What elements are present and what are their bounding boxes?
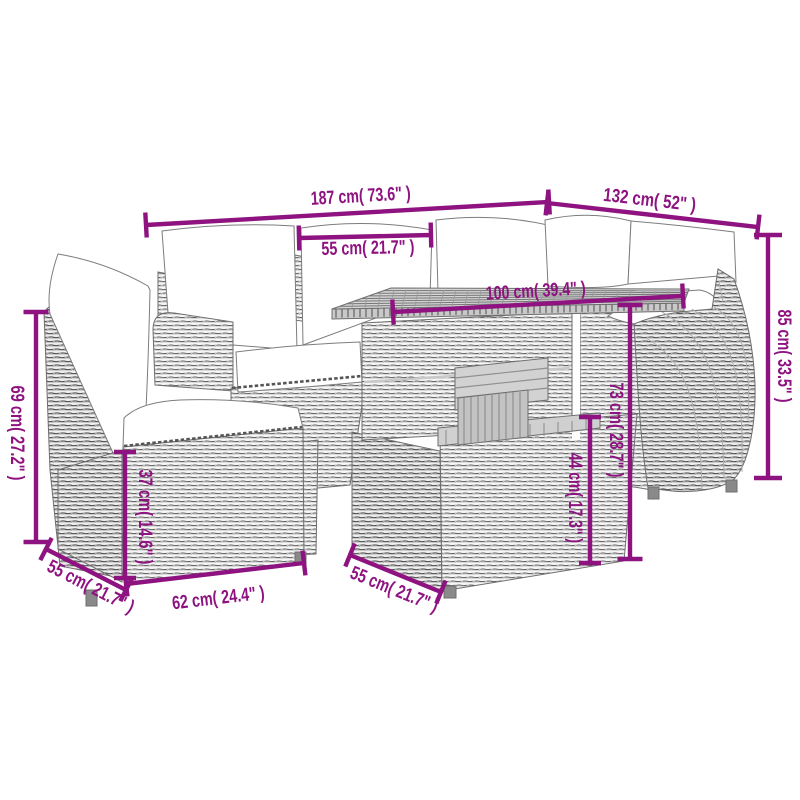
svg-text:69 cm( 27.2" ): 69 cm( 27.2" ) [6,386,27,481]
svg-text:55 cm( 21.7" ): 55 cm( 21.7" ) [321,237,414,260]
svg-text:85 cm( 33.5" ): 85 cm( 33.5" ) [773,310,794,403]
svg-text:37 cm( 14.6" ): 37 cm( 14.6" ) [134,470,155,565]
svg-text:44 cm( 17.3" ): 44 cm( 17.3" ) [564,453,585,543]
svg-text:73 cm( 28.7" ): 73 cm( 28.7" ) [605,383,626,478]
